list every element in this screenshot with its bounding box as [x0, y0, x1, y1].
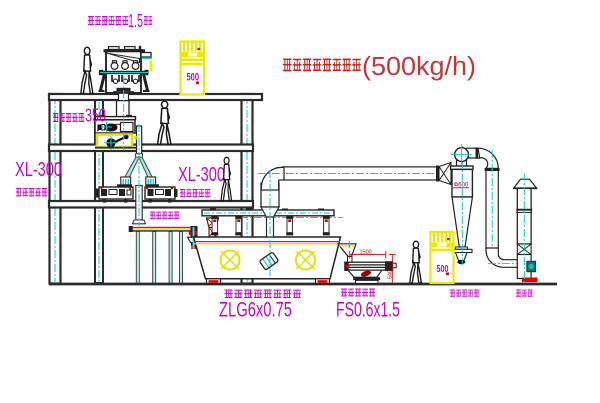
svg-text:540: 540: [388, 270, 394, 279]
svg-text:FS0.6x1.5: FS0.6x1.5: [336, 299, 400, 322]
svg-text:350: 350: [85, 106, 106, 126]
svg-text:ZLG6x0.75: ZLG6x0.75: [219, 299, 292, 322]
svg-text:(500kg/h): (500kg/h): [362, 53, 476, 81]
svg-text:XL-300: XL-300: [178, 164, 225, 186]
svg-text:1.5: 1.5: [128, 11, 143, 31]
svg-text:XL-300: XL-300: [15, 159, 62, 181]
svg-text:1500: 1500: [360, 249, 372, 255]
